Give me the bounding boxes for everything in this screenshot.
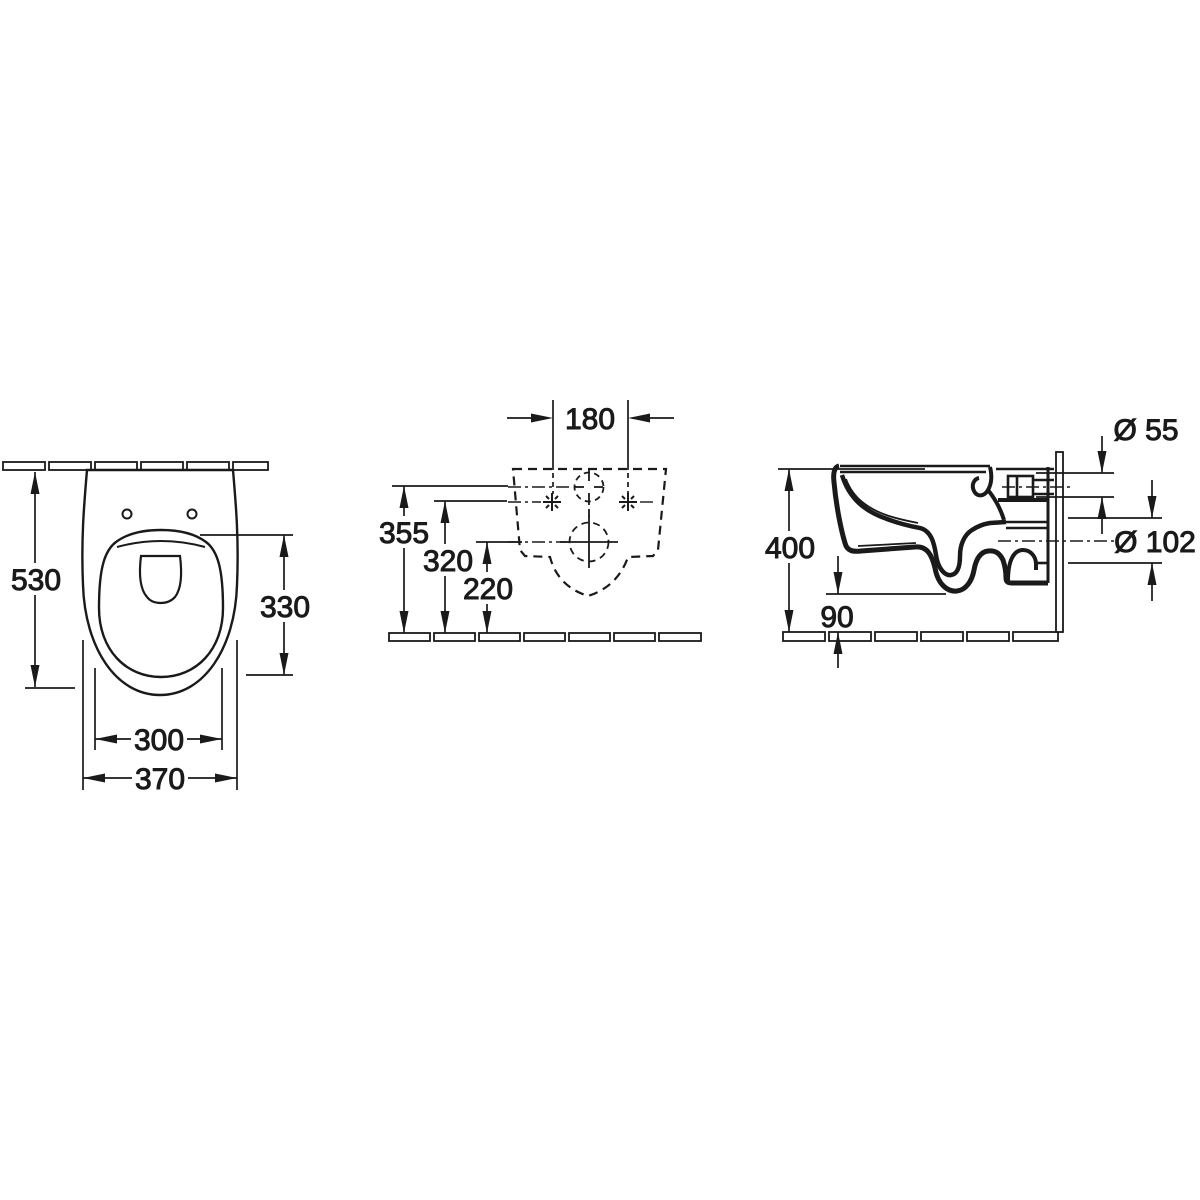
outlet-pipe-hump [1008, 550, 1036, 581]
bowl-inner-surface [842, 475, 1006, 575]
toilet-outline-top-view [82, 470, 237, 695]
fixing-hole-symbol-left [543, 493, 561, 511]
fixing-hole-symbol-right [619, 493, 637, 511]
dim-530-label: 530 [11, 564, 61, 597]
dim-dia55-label: Ø 55 [1113, 414, 1178, 447]
dim-180-label: 180 [565, 403, 615, 436]
outlet-hole [560, 516, 618, 568]
wall-elevation-view: 180 [376, 400, 701, 641]
toilet-technical-drawing: 530 330 300 37 [0, 0, 1200, 1200]
flush-rim-lip [973, 467, 1004, 520]
inlet-hole [575, 469, 604, 517]
side-section-view: 400 90 Ø 55 Ø 102 [761, 414, 1196, 668]
dim-220-label: 220 [463, 573, 513, 606]
centerline-connectors [508, 487, 655, 542]
dim-dia102-label: Ø 102 [1114, 526, 1196, 559]
dim-300-label: 300 [134, 724, 184, 757]
technical-drawing-page: 530 330 300 37 [0, 0, 1200, 1200]
dim-400-label: 400 [765, 532, 815, 565]
dim-370-label: 370 [135, 763, 185, 796]
outlet-channel [1006, 522, 1048, 528]
dim-330-label: 330 [260, 591, 310, 624]
top-view: 530 330 300 37 [3, 462, 312, 796]
dim-90-label: 90 [820, 601, 853, 634]
wall-view-floor-line [389, 633, 701, 641]
wall-section [1056, 452, 1063, 632]
